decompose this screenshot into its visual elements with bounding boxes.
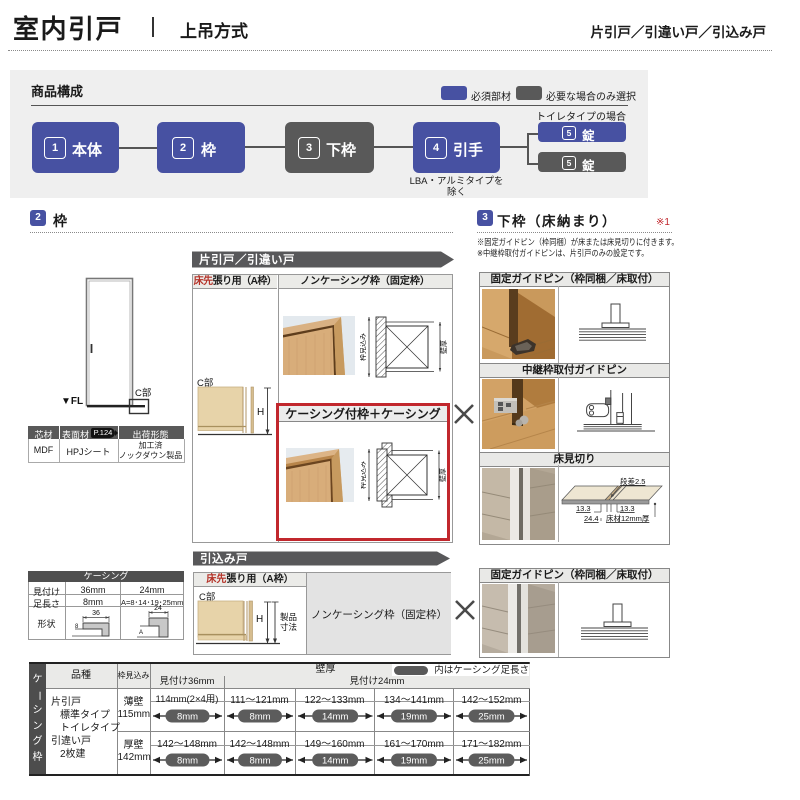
svg-text:引込み戸: 引込み戸 bbox=[200, 552, 248, 566]
svg-text:19mm: 19mm bbox=[401, 755, 427, 766]
svg-text:H: H bbox=[256, 614, 263, 625]
svg-text:24: 24 bbox=[154, 605, 162, 612]
svg-text:枠見込み: 枠見込み bbox=[360, 333, 367, 361]
svg-text:8mm: 8mm bbox=[176, 755, 197, 766]
svg-text:寸法: 寸法 bbox=[280, 622, 297, 632]
svg-text:14mm: 14mm bbox=[321, 755, 347, 766]
svg-text:壁厚: 壁厚 bbox=[438, 468, 447, 482]
svg-text:壁厚: 壁厚 bbox=[439, 340, 448, 354]
svg-text:13.3: 13.3 bbox=[576, 504, 591, 513]
svg-text:19mm: 19mm bbox=[401, 712, 427, 723]
svg-text:25mm: 25mm bbox=[478, 755, 504, 766]
svg-text:13.3: 13.3 bbox=[620, 504, 635, 513]
svg-text:段差2.5: 段差2.5 bbox=[620, 477, 645, 486]
svg-text:8mm: 8mm bbox=[249, 712, 270, 723]
svg-text:製品: 製品 bbox=[280, 612, 297, 622]
svg-text:8mm: 8mm bbox=[176, 712, 197, 723]
svg-text:36: 36 bbox=[92, 610, 100, 617]
svg-text:24.4: 24.4 bbox=[584, 514, 599, 523]
svg-text:25mm: 25mm bbox=[478, 712, 504, 723]
svg-text:14mm: 14mm bbox=[321, 712, 347, 723]
svg-text:H: H bbox=[257, 407, 264, 418]
svg-text:床材12mm厚: 床材12mm厚 bbox=[606, 513, 650, 523]
svg-text:A: A bbox=[139, 630, 143, 636]
svg-text:▼FL: ▼FL bbox=[61, 396, 83, 407]
svg-text:8mm: 8mm bbox=[249, 755, 270, 766]
svg-text:片引戸／引違い戸: 片引戸／引違い戸 bbox=[199, 253, 295, 267]
svg-text:枠見込み: 枠見込み bbox=[361, 461, 367, 489]
svg-text:C部: C部 bbox=[135, 387, 151, 399]
